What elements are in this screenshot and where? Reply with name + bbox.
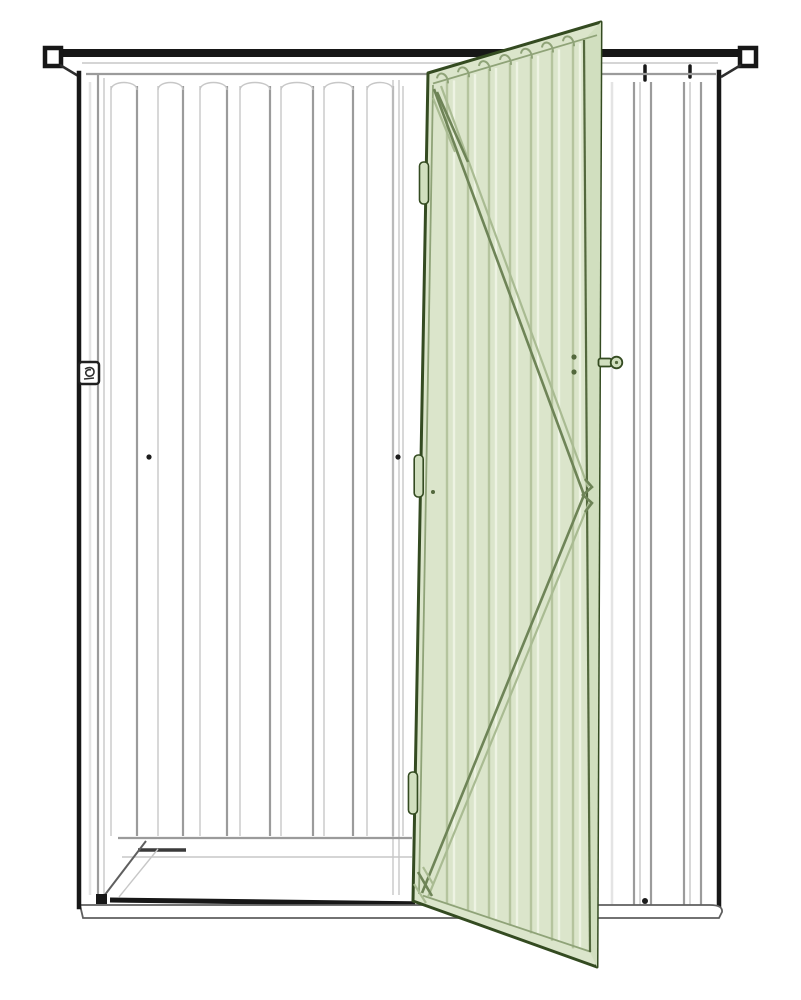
hasp-latch — [79, 362, 99, 384]
roof-right-gusset — [721, 65, 741, 77]
door-knob-stem — [599, 359, 612, 367]
door-lock-screw — [571, 369, 576, 374]
roof-edge-bar — [59, 49, 743, 57]
shed-open-door-illustration — [0, 0, 801, 1000]
right-wall-screw — [642, 898, 648, 904]
latch-plate — [79, 362, 99, 384]
door-face-screw — [431, 490, 435, 494]
door-hinge — [408, 772, 417, 814]
door-lock-screw — [571, 354, 576, 359]
door-knob-center — [615, 361, 618, 364]
illustration-canvas — [0, 0, 801, 1000]
door-hinge — [414, 455, 423, 497]
floor-corner-foot — [96, 894, 107, 904]
roof-right-end-cap — [740, 48, 756, 66]
base-strip — [80, 905, 722, 918]
interior-screw — [146, 454, 151, 459]
interior-screw — [395, 454, 400, 459]
roof-left-end-cap — [45, 48, 61, 66]
left-corner — [79, 73, 99, 907]
open-door — [408, 22, 622, 967]
door-hinge — [420, 162, 429, 204]
